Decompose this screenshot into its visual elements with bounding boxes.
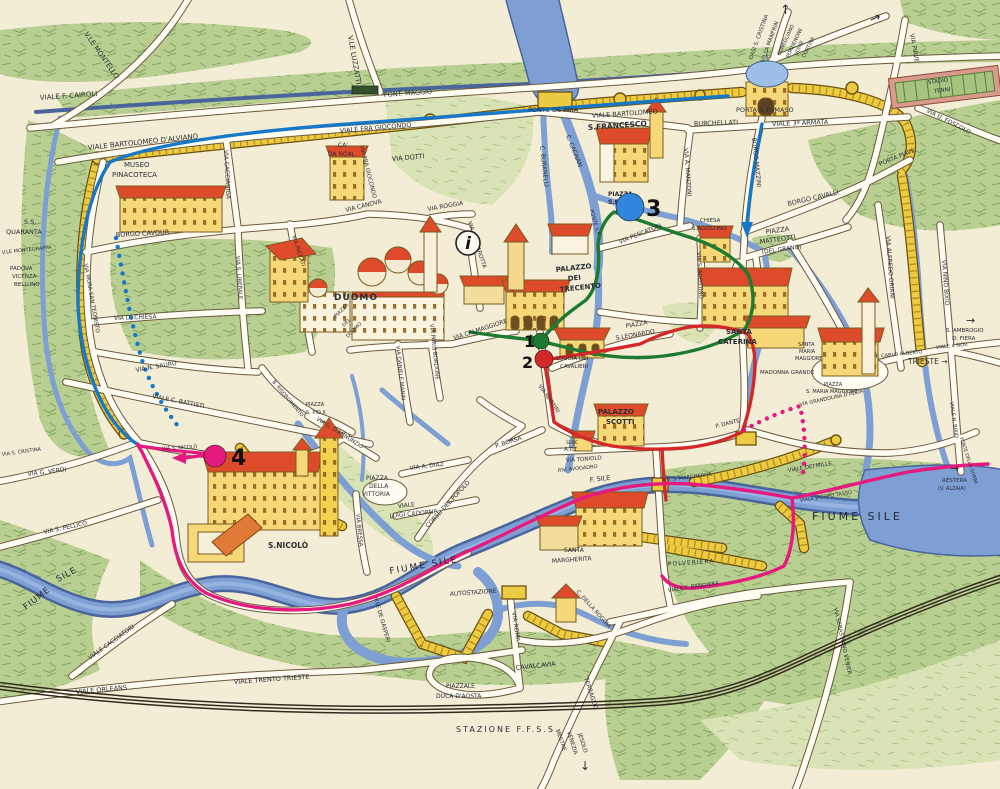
street-label: (V. ALZAIA) (938, 486, 966, 492)
street-label: PIAZZA (824, 382, 843, 388)
route-marker-dot-4 (204, 445, 226, 467)
poi-ss-quaranta: S.S. (24, 218, 36, 226)
poi-porta-s-tomaso: PORTA S.TOMASO (736, 106, 794, 114)
street-label: DELLA (369, 483, 389, 490)
street-label: MADONNA GRANDE (760, 370, 815, 376)
street-label: MARIA (799, 349, 816, 355)
street-label: RESTERA (942, 478, 967, 484)
street-label: → (966, 314, 975, 327)
street-label: PIAZZA (366, 475, 389, 482)
poi-museo-pinacoteca: MUSEO (124, 161, 150, 169)
street-label: S. PIO X (306, 410, 326, 416)
monument-mark (352, 86, 378, 94)
poi-s-nicolo: S.NICOLÒ (268, 541, 308, 550)
street-label: → (950, 462, 959, 475)
poi-santa-maria-maggiore: SANTA (798, 342, 815, 348)
street-label: PADOVA (10, 266, 33, 272)
via-roma-bridge (502, 586, 526, 599)
street-label: CA' (338, 142, 348, 149)
street-label: BELLUNO (14, 282, 40, 288)
river-label: FIUME SILE (812, 510, 903, 523)
route-marker-dot-2 (535, 350, 553, 368)
street-label: A.P.T. (564, 447, 578, 453)
street-label: ↓ (580, 759, 590, 773)
street-label: SCOTTI (606, 418, 634, 426)
poi-s-agostino: CHIESA (700, 218, 721, 224)
poi-sede-apt: SEDE (566, 440, 578, 446)
street-label: DA NOAL (328, 151, 356, 158)
poi-duomo: DUOMO (334, 293, 378, 303)
building-via-riccati-house (266, 238, 316, 302)
street-label: MAGGIORE (795, 356, 822, 362)
poi-stazione: STAZIONE F.F.S.S. (456, 725, 560, 734)
route-marker-number: 3 (646, 197, 661, 222)
street-label: S.AGOSTINO (692, 226, 727, 232)
street-label: CATERINA (718, 338, 757, 346)
route-marker-number: 1 (524, 332, 535, 351)
street-label: TRIESTE → (907, 357, 948, 366)
route-marker-dot-1 (533, 333, 549, 349)
street-label: PIAZZA (306, 402, 325, 408)
route-marker-number: 4 (231, 446, 246, 471)
street-label: VITTORIA (362, 491, 391, 498)
treviso-tourist-map: V.LE MONTELLOVIALE F. CAIROLIPONT. MAGGI… (0, 0, 1000, 789)
street-label: QUARANTA (6, 228, 42, 236)
building-museo-pinacoteca (116, 186, 226, 232)
route-marker-dot-3 (616, 193, 644, 221)
street-label: DUCA D'AOSTA (436, 693, 482, 700)
poi-santa-margherita: SANTA (564, 547, 585, 554)
north-exit-arrow: ↑ (780, 3, 791, 18)
poi-loggia-dei-cavalieri: LOGGIA DEI (556, 356, 589, 362)
street-label: PIAZZALE (446, 683, 475, 690)
street-label: VICENZA (12, 274, 37, 280)
poi-santa-caterina: SANTA (726, 328, 753, 336)
poi-palazzo-scotti: PALAZZO (598, 408, 634, 416)
street-label: PINACOTECA (112, 171, 157, 179)
street-label: DEI (567, 274, 581, 283)
street-label: PONTE DE PRIA (528, 106, 579, 114)
street-label: S. AMBROGIO (946, 328, 984, 334)
map-canvas: V.LE MONTELLOVIALE F. CAIROLIPONT. MAGGI… (0, 0, 1000, 789)
route-marker-number: 2 (522, 353, 533, 372)
street-label: CAVALIERI (560, 364, 588, 370)
street-label: BURCHELLATI (694, 118, 738, 128)
